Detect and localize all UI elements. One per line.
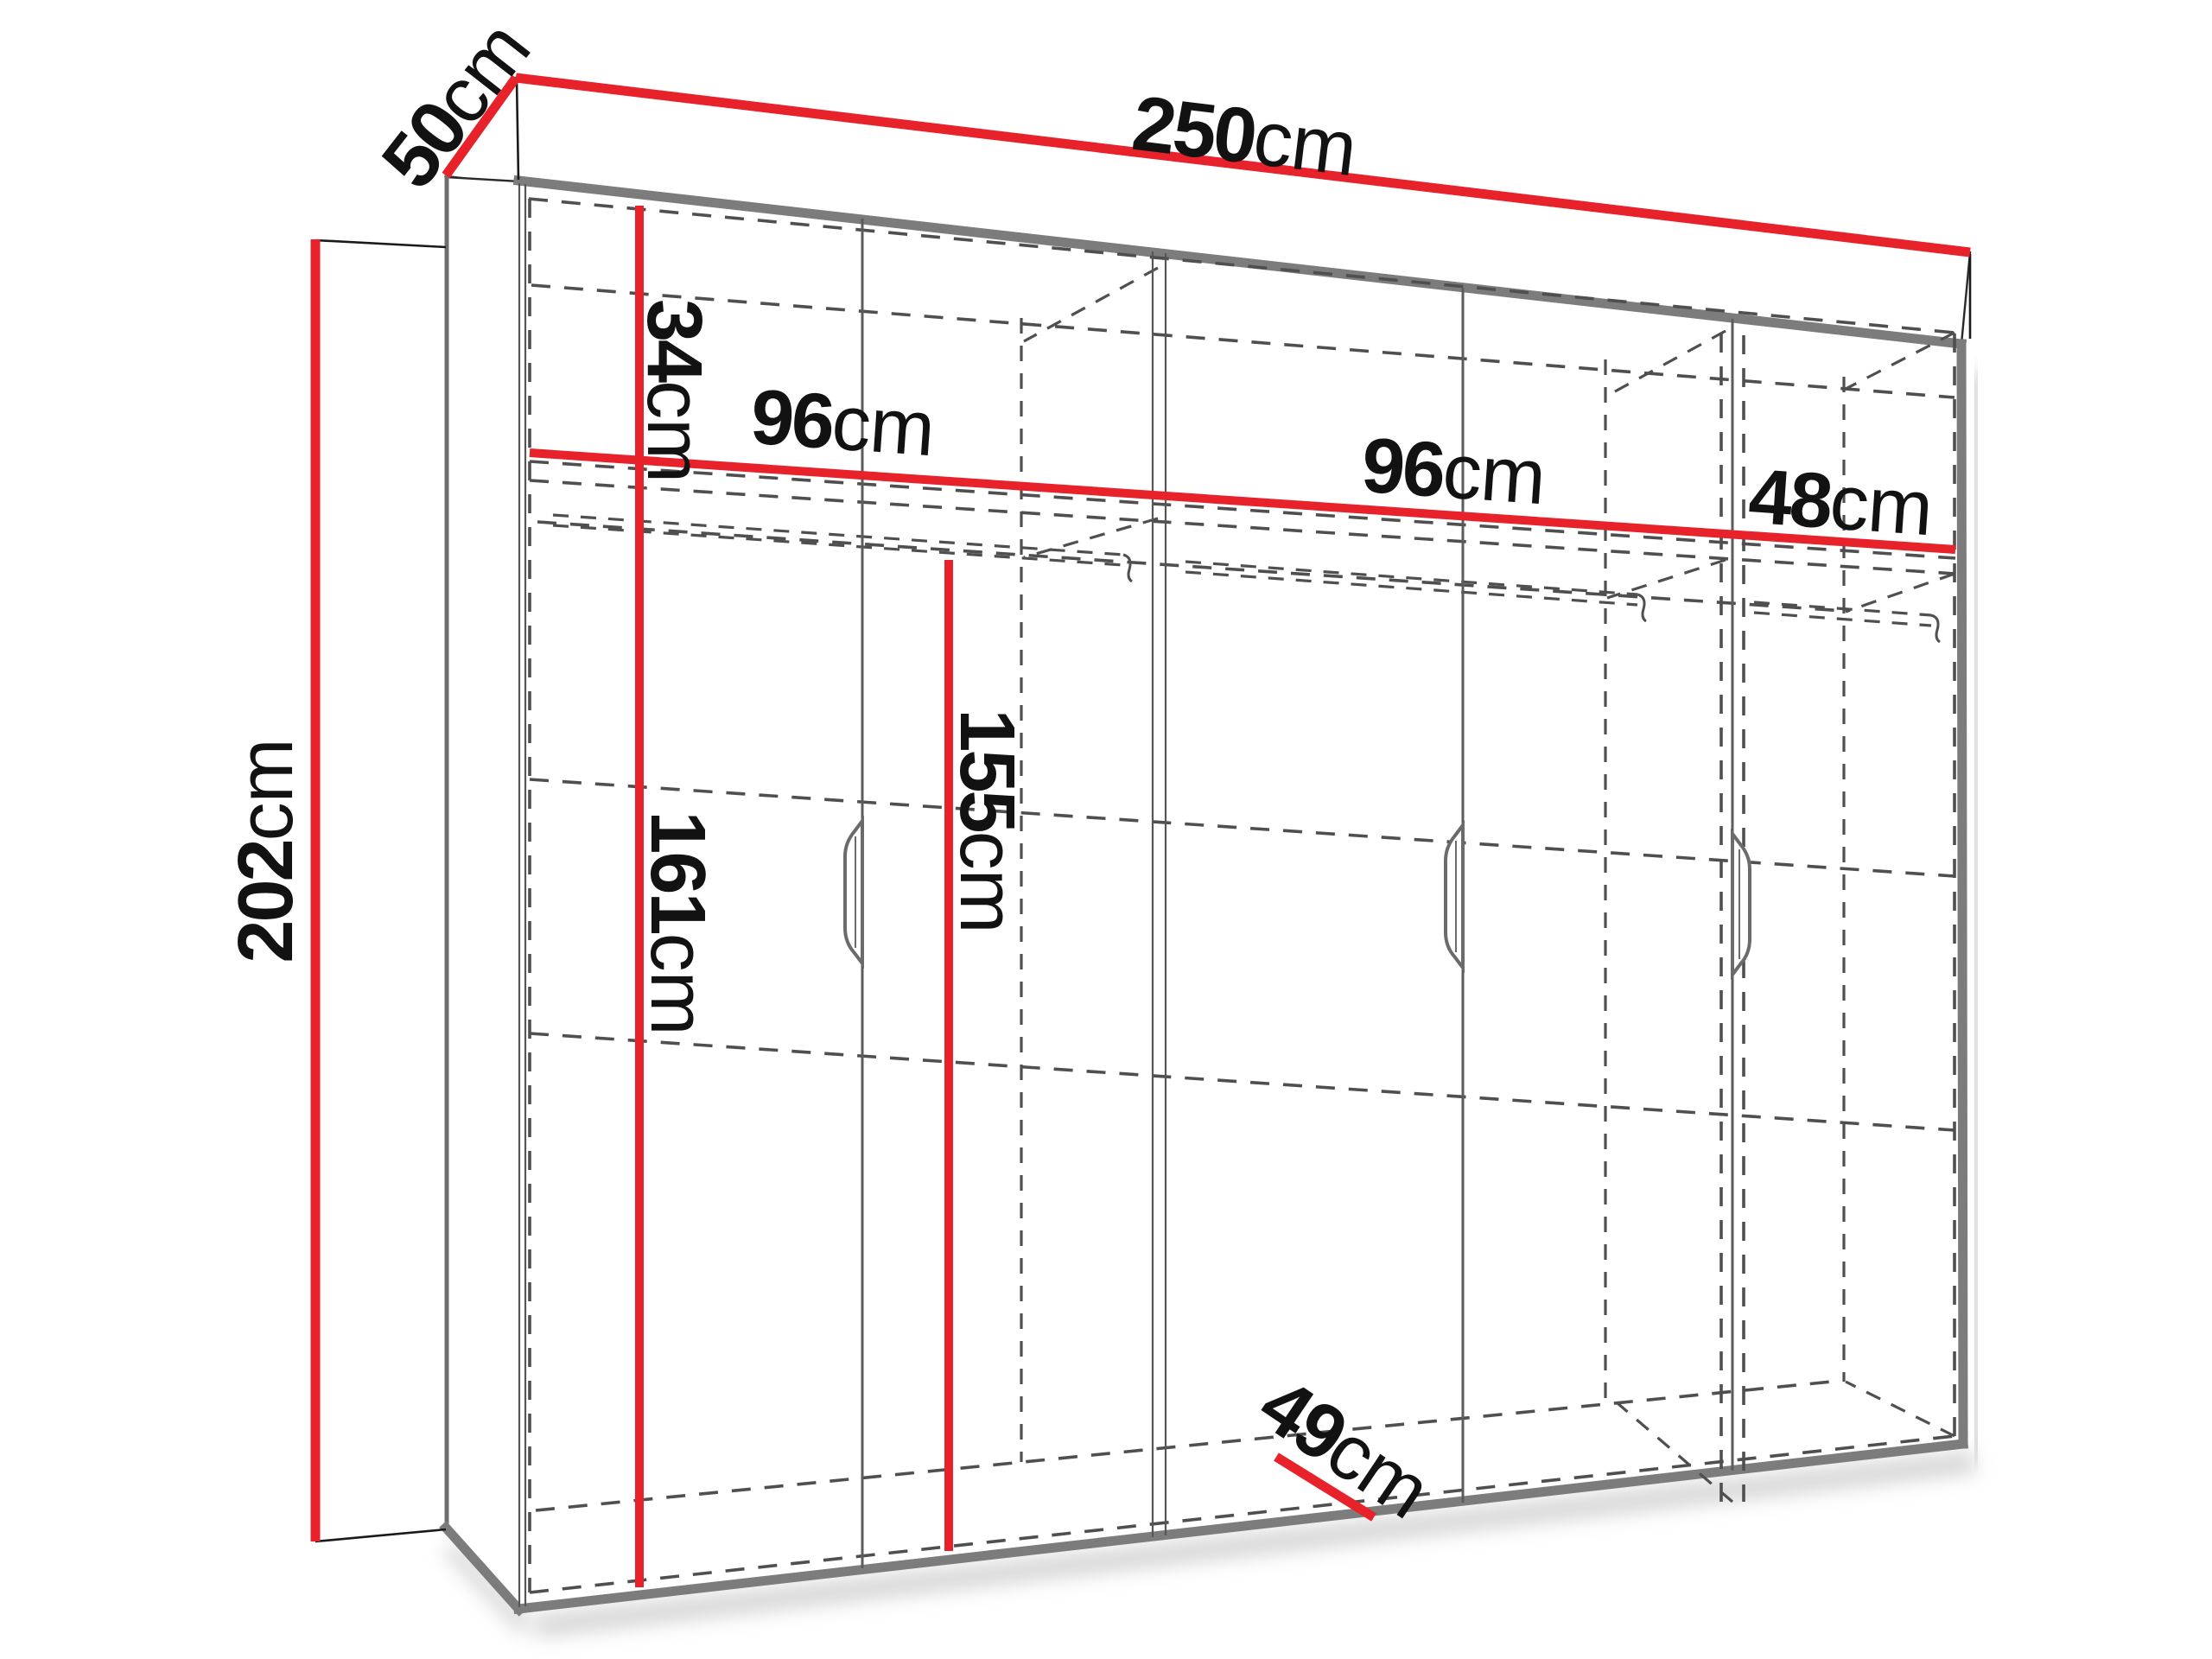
section1-width-label: 96cm [748, 374, 938, 474]
inner-door-height-label: 155cm [944, 709, 1030, 932]
front-right-edge [1961, 344, 1963, 1444]
door4-handle [1446, 825, 1463, 968]
left-interior-height-label: 161cm [634, 810, 721, 1034]
door2-handle [845, 821, 862, 963]
door5-handle [1732, 834, 1750, 975]
side-panel-face [446, 176, 518, 1609]
section2-width-label: 96cm [1359, 423, 1548, 522]
right-shadow [1975, 372, 1977, 1460]
diagram-canvas: 250cm 50cm 202cm 34cm 96cm 96cm 48cm 161… [0, 0, 2212, 1659]
height-tick-bottom [315, 1529, 446, 1541]
height-tick-top [315, 240, 446, 247]
section3-width-label: 48cm [1746, 454, 1935, 553]
top-compartment-label: 34cm [631, 299, 717, 482]
wardrobe-dimension-diagram: 250cm 50cm 202cm 34cm 96cm 96cm 48cm 161… [0, 0, 2212, 1659]
height-dimension-label: 202cm [223, 739, 309, 963]
